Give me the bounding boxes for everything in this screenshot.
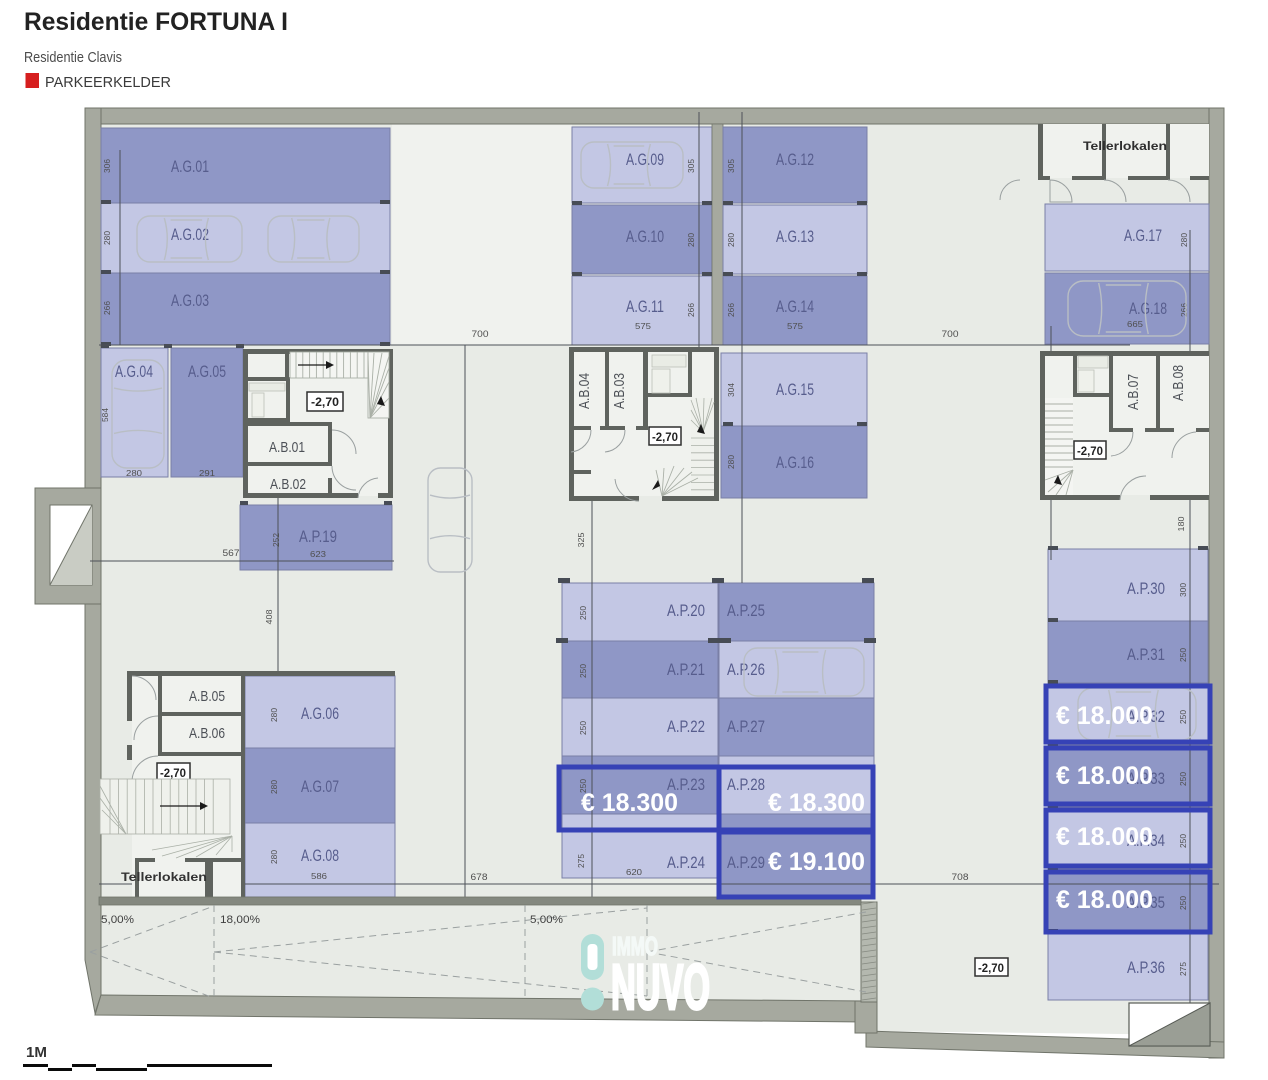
svg-text:280: 280 [726,233,736,247]
svg-text:700: 700 [472,329,489,339]
svg-text:575: 575 [635,321,651,331]
svg-text:266: 266 [686,303,696,317]
svg-text:A.P.22: A.P.22 [667,717,705,736]
svg-text:266: 266 [1179,303,1189,317]
svg-text:-2,70: -2,70 [652,432,678,444]
svg-text:306: 306 [102,159,112,173]
svg-text:708: 708 [952,872,969,882]
svg-text:€ 18.000: € 18.000 [1056,762,1153,790]
svg-text:A.P.28: A.P.28 [727,775,765,794]
svg-text:700: 700 [942,329,959,339]
svg-text:A.P.29: A.P.29 [727,853,765,872]
svg-text:Tellerlokalen: Tellerlokalen [121,872,207,884]
svg-text:18,00%: 18,00% [220,914,260,926]
svg-text:Residentie Clavis: Residentie Clavis [24,50,122,66]
svg-text:A.B.03: A.B.03 [611,373,628,409]
svg-text:A.G.01: A.G.01 [171,157,209,176]
svg-text:250: 250 [578,606,588,620]
svg-text:280: 280 [102,231,112,245]
svg-text:280: 280 [269,850,279,864]
svg-text:586: 586 [311,871,327,881]
svg-text:250: 250 [578,721,588,735]
svg-text:A.P.27: A.P.27 [727,717,765,736]
svg-text:A.G.14: A.G.14 [776,297,814,316]
svg-text:252: 252 [271,533,281,547]
svg-text:275: 275 [1178,962,1188,976]
svg-text:A.G.02: A.G.02 [171,225,209,244]
svg-text:A.G.06: A.G.06 [301,704,339,723]
svg-text:NUVO: NUVO [611,951,710,1023]
svg-text:A.G.16: A.G.16 [776,453,814,472]
svg-text:A.P.20: A.P.20 [667,601,705,620]
svg-text:€ 19.100: € 19.100 [768,848,865,876]
svg-text:584: 584 [100,408,110,422]
svg-text:PARKEERKELDER: PARKEERKELDER [45,74,171,91]
svg-text:623: 623 [310,549,326,559]
svg-text:280: 280 [726,455,736,469]
svg-text:620: 620 [626,867,642,877]
svg-text:280: 280 [126,468,142,478]
svg-text:A.G.05: A.G.05 [188,362,226,381]
svg-text:5,00%: 5,00% [530,914,563,926]
svg-text:A.G.13: A.G.13 [776,227,814,246]
svg-text:Tellerlokalen: Tellerlokalen [1083,139,1167,153]
svg-text:A.B.07: A.B.07 [1125,374,1142,410]
svg-text:665: 665 [1127,319,1143,329]
svg-text:A.B.08: A.B.08 [1170,365,1187,401]
svg-text:€ 18.000: € 18.000 [1056,823,1153,851]
svg-text:A.B.04: A.B.04 [576,373,593,409]
svg-text:250: 250 [1178,772,1188,786]
svg-text:A.G.17: A.G.17 [1124,226,1162,245]
svg-text:A.B.01: A.B.01 [269,439,305,456]
svg-text:-2,70: -2,70 [978,963,1004,975]
svg-text:A.P.30: A.P.30 [1127,579,1165,598]
svg-text:A.P.26: A.P.26 [727,660,765,679]
svg-text:A.G.08: A.G.08 [301,846,339,865]
svg-text:€ 18.300: € 18.300 [768,789,865,817]
svg-text:A.G.10: A.G.10 [626,227,664,246]
svg-text:A.G.11: A.G.11 [626,297,664,316]
svg-text:A.G.03: A.G.03 [171,291,209,310]
svg-text:-2,70: -2,70 [311,395,339,409]
svg-text:A.B.05: A.B.05 [189,688,225,705]
svg-text:1M: 1M [26,1044,47,1061]
svg-text:304: 304 [726,383,736,397]
svg-text:567: 567 [223,548,240,558]
svg-text:A.P.24: A.P.24 [667,853,705,872]
svg-text:-2,70: -2,70 [160,768,186,780]
svg-text:€ 18.000: € 18.000 [1056,702,1153,730]
svg-text:325: 325 [576,532,586,547]
svg-text:305: 305 [726,159,736,173]
svg-text:250: 250 [1178,710,1188,724]
svg-text:Residentie FORTUNA I: Residentie FORTUNA I [24,8,288,36]
svg-text:A.G.15: A.G.15 [776,380,814,399]
svg-text:5,00%: 5,00% [101,914,134,926]
svg-text:A.P.25: A.P.25 [727,601,765,620]
svg-text:250: 250 [578,664,588,678]
svg-text:A.P.36: A.P.36 [1127,958,1165,977]
svg-text:180: 180 [1176,516,1186,531]
svg-text:280: 280 [269,708,279,722]
svg-text:€ 18.300: € 18.300 [581,789,678,817]
svg-text:250: 250 [1178,896,1188,910]
svg-text:250: 250 [1178,834,1188,848]
svg-text:-2,70: -2,70 [1077,446,1103,458]
svg-text:305: 305 [686,159,696,173]
svg-text:A.G.07: A.G.07 [301,777,339,796]
svg-text:575: 575 [787,321,803,331]
svg-text:266: 266 [726,303,736,317]
svg-text:250: 250 [1178,648,1188,662]
svg-text:A.B.06: A.B.06 [189,725,225,742]
svg-text:A.P.31: A.P.31 [1127,645,1165,664]
svg-text:A.G.18: A.G.18 [1129,299,1167,318]
svg-text:300: 300 [1178,583,1188,597]
svg-text:A.P.21: A.P.21 [667,660,705,679]
svg-text:280: 280 [686,233,696,247]
svg-text:291: 291 [199,468,215,478]
svg-text:408: 408 [264,609,274,624]
svg-text:275: 275 [576,854,586,868]
svg-text:A.P.19: A.P.19 [299,527,337,546]
svg-text:A.G.09: A.G.09 [626,150,664,169]
svg-text:280: 280 [269,780,279,794]
svg-text:280: 280 [1179,233,1189,247]
svg-text:A.B.02: A.B.02 [270,476,306,493]
svg-text:€ 18.000: € 18.000 [1056,886,1153,914]
svg-text:A.G.04: A.G.04 [115,362,153,381]
svg-text:266: 266 [102,301,112,315]
svg-text:678: 678 [471,872,488,882]
svg-text:A.G.12: A.G.12 [776,150,814,169]
